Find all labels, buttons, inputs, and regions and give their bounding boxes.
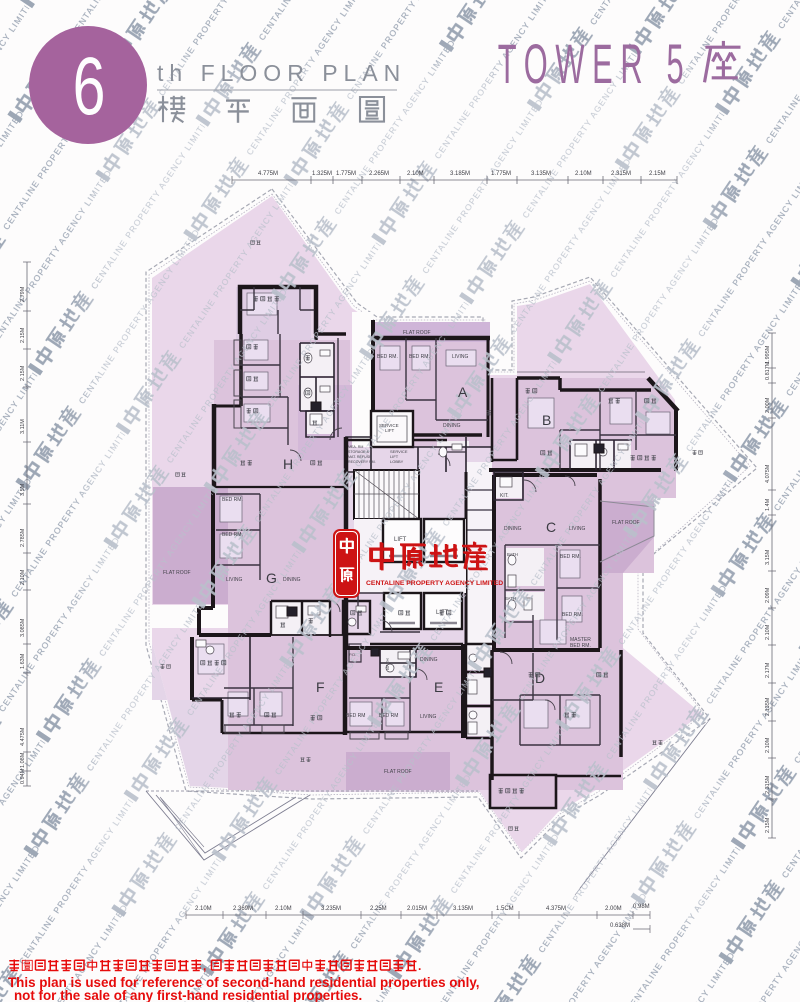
- svg-text:2.00M: 2.00M: [605, 906, 622, 912]
- svg-text:1.08M: 1.08M: [20, 752, 26, 768]
- svg-text:3.135M: 3.135M: [531, 171, 551, 177]
- svg-text:0.817M: 0.817M: [765, 361, 771, 380]
- svg-text:DINING: DINING: [443, 423, 461, 429]
- svg-text:3.235M: 3.235M: [321, 906, 341, 912]
- svg-text:LIFT: LIFT: [385, 428, 395, 433]
- svg-text:P.D.: P.D.: [349, 652, 356, 657]
- svg-text:MAT. REFUSE: MAT. REFUSE: [348, 455, 372, 459]
- svg-text:1.775M: 1.775M: [491, 171, 511, 177]
- svg-text:BED RM.: BED RM.: [562, 612, 583, 618]
- svg-text:BATH: BATH: [505, 596, 516, 601]
- svg-text:BED RM: BED RM: [379, 713, 398, 719]
- svg-text:4.375M: 4.375M: [546, 906, 566, 912]
- svg-text:LIVING: LIVING: [226, 577, 243, 583]
- svg-text:2.10M: 2.10M: [765, 737, 771, 753]
- svg-text:BED RM.: BED RM.: [560, 554, 581, 560]
- svg-text:3.185M: 3.185M: [450, 171, 470, 177]
- svg-text:BED RM.: BED RM.: [222, 532, 243, 538]
- svg-text:not for the sale of any first-: not for the sale of any first-hand resid…: [14, 988, 362, 1002]
- svg-text:FLAT ROOF: FLAT ROOF: [163, 570, 191, 576]
- svg-text:,: ,: [203, 959, 206, 973]
- svg-text:1.995M: 1.995M: [765, 345, 771, 364]
- svg-text:BATH: BATH: [507, 552, 518, 557]
- svg-text:2.015M: 2.015M: [407, 906, 427, 912]
- svg-text:th FLOOR PLAN: th FLOOR PLAN: [157, 60, 406, 86]
- svg-text:LIVING: LIVING: [420, 714, 437, 720]
- svg-text:2.15M: 2.15M: [20, 327, 26, 343]
- svg-text:DINING: DINING: [283, 577, 301, 583]
- svg-text:BED RM.: BED RM.: [377, 354, 398, 360]
- svg-text:2.315M: 2.315M: [611, 171, 631, 177]
- svg-text:0.638M: 0.638M: [610, 923, 630, 929]
- svg-text:4.075M: 4.075M: [765, 464, 771, 483]
- svg-text:6: 6: [73, 41, 106, 133]
- svg-text:3.5M: 3.5M: [20, 483, 26, 496]
- svg-text:0.98M: 0.98M: [633, 904, 650, 910]
- svg-text:BED RM.: BED RM.: [570, 643, 591, 649]
- svg-text:LOBBY: LOBBY: [390, 459, 404, 464]
- svg-text:CENTALINE PROPERTY AGENCY LIMI: CENTALINE PROPERTY AGENCY LIMITED: [366, 580, 503, 587]
- svg-text:BATH: BATH: [385, 658, 390, 670]
- svg-text:2.09M: 2.09M: [765, 587, 771, 603]
- svg-text:2.369M: 2.369M: [233, 906, 253, 912]
- svg-text:2.10M: 2.10M: [275, 906, 292, 912]
- svg-text:3.11M: 3.11M: [20, 419, 26, 434]
- svg-text:MEA. RM: MEA. RM: [348, 445, 363, 449]
- svg-text:.: .: [418, 959, 421, 973]
- svg-text:2.10M: 2.10M: [20, 569, 26, 585]
- svg-text:DINING: DINING: [420, 657, 438, 663]
- svg-text:TOWER 5: TOWER 5: [498, 32, 692, 95]
- svg-text:2.10M: 2.10M: [195, 906, 212, 912]
- svg-text:1.5CM: 1.5CM: [496, 906, 514, 912]
- svg-text:E: E: [434, 679, 443, 695]
- svg-text:KIT.: KIT.: [500, 493, 509, 499]
- svg-text:2.15M: 2.15M: [20, 365, 26, 381]
- svg-text:2.17M: 2.17M: [765, 662, 771, 678]
- svg-text:LIFT: LIFT: [394, 537, 407, 543]
- svg-text:2.265M: 2.265M: [369, 171, 389, 177]
- svg-text:2.79M: 2.79M: [20, 286, 26, 302]
- svg-text:3.15M: 3.15M: [765, 549, 771, 565]
- svg-text:2.00M: 2.00M: [765, 397, 771, 413]
- svg-text:2.10M: 2.10M: [407, 171, 424, 177]
- svg-text:FLAT ROOF: FLAT ROOF: [612, 520, 640, 526]
- svg-text:LIVING: LIVING: [569, 526, 586, 532]
- svg-text:3.085M: 3.085M: [20, 618, 26, 637]
- svg-text:LIVING: LIVING: [452, 354, 469, 360]
- svg-text:RECOVERY RM.: RECOVERY RM.: [348, 460, 376, 464]
- svg-text:1.63M: 1.63M: [20, 653, 26, 669]
- svg-text:G: G: [266, 570, 277, 586]
- svg-text:2.15M: 2.15M: [765, 817, 771, 833]
- svg-text:1.325M: 1.325M: [312, 171, 332, 177]
- svg-text:F: F: [316, 679, 325, 695]
- svg-text:STORAGE &: STORAGE &: [348, 450, 370, 454]
- svg-text:0.94M: 0.94M: [20, 768, 26, 784]
- svg-text:DINING: DINING: [504, 526, 522, 532]
- svg-text:2.135M: 2.135M: [765, 697, 771, 716]
- svg-text:2.10M: 2.10M: [765, 624, 771, 640]
- svg-text:C: C: [546, 519, 556, 535]
- svg-text:BED RM: BED RM: [346, 713, 365, 719]
- svg-text:BED RM.: BED RM.: [409, 354, 430, 360]
- svg-text:2.15M: 2.15M: [649, 171, 666, 177]
- svg-text:2.10M: 2.10M: [575, 171, 592, 177]
- svg-text:4.775M: 4.775M: [258, 171, 278, 177]
- svg-text:1.4M: 1.4M: [765, 498, 771, 511]
- svg-text:2.785M: 2.785M: [20, 528, 26, 547]
- svg-text:BED RM.: BED RM.: [222, 497, 243, 503]
- svg-text:H: H: [283, 456, 293, 472]
- svg-text:A: A: [458, 384, 468, 400]
- svg-text:B: B: [542, 412, 551, 428]
- svg-text:FLAT ROOF: FLAT ROOF: [403, 330, 431, 336]
- svg-text:2.25M: 2.25M: [370, 906, 387, 912]
- svg-text:1.775M: 1.775M: [336, 171, 356, 177]
- svg-text:4.475M: 4.475M: [20, 727, 26, 746]
- svg-text:FLAT ROOF: FLAT ROOF: [384, 769, 412, 775]
- svg-text:2.315M: 2.315M: [765, 775, 771, 794]
- svg-text:3.135M: 3.135M: [453, 906, 473, 912]
